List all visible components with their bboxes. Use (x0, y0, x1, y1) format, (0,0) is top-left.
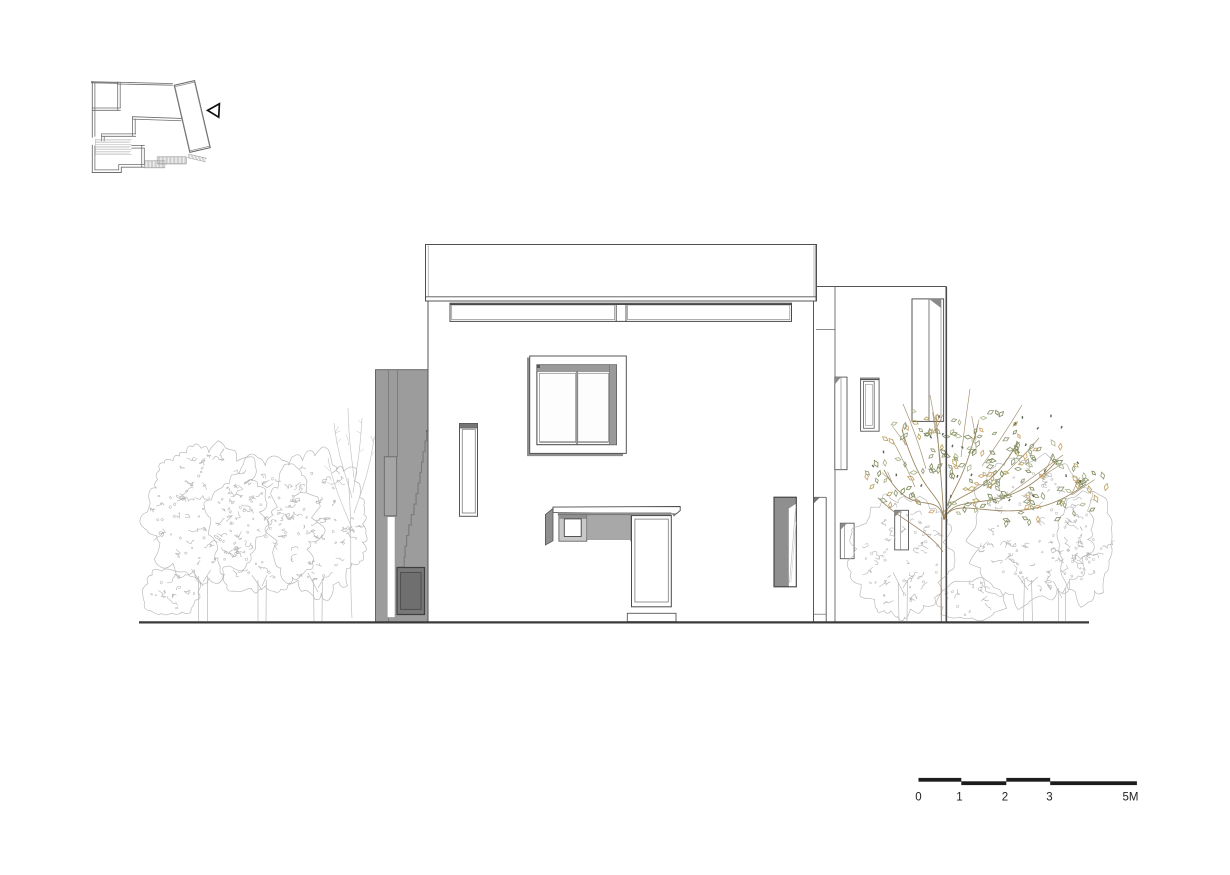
svg-text:2: 2 (1002, 792, 1008, 804)
svg-text:0: 0 (915, 792, 921, 804)
svg-text:5M: 5M (1123, 792, 1139, 804)
svg-text:1: 1 (956, 792, 962, 804)
svg-text:3: 3 (1046, 792, 1052, 804)
